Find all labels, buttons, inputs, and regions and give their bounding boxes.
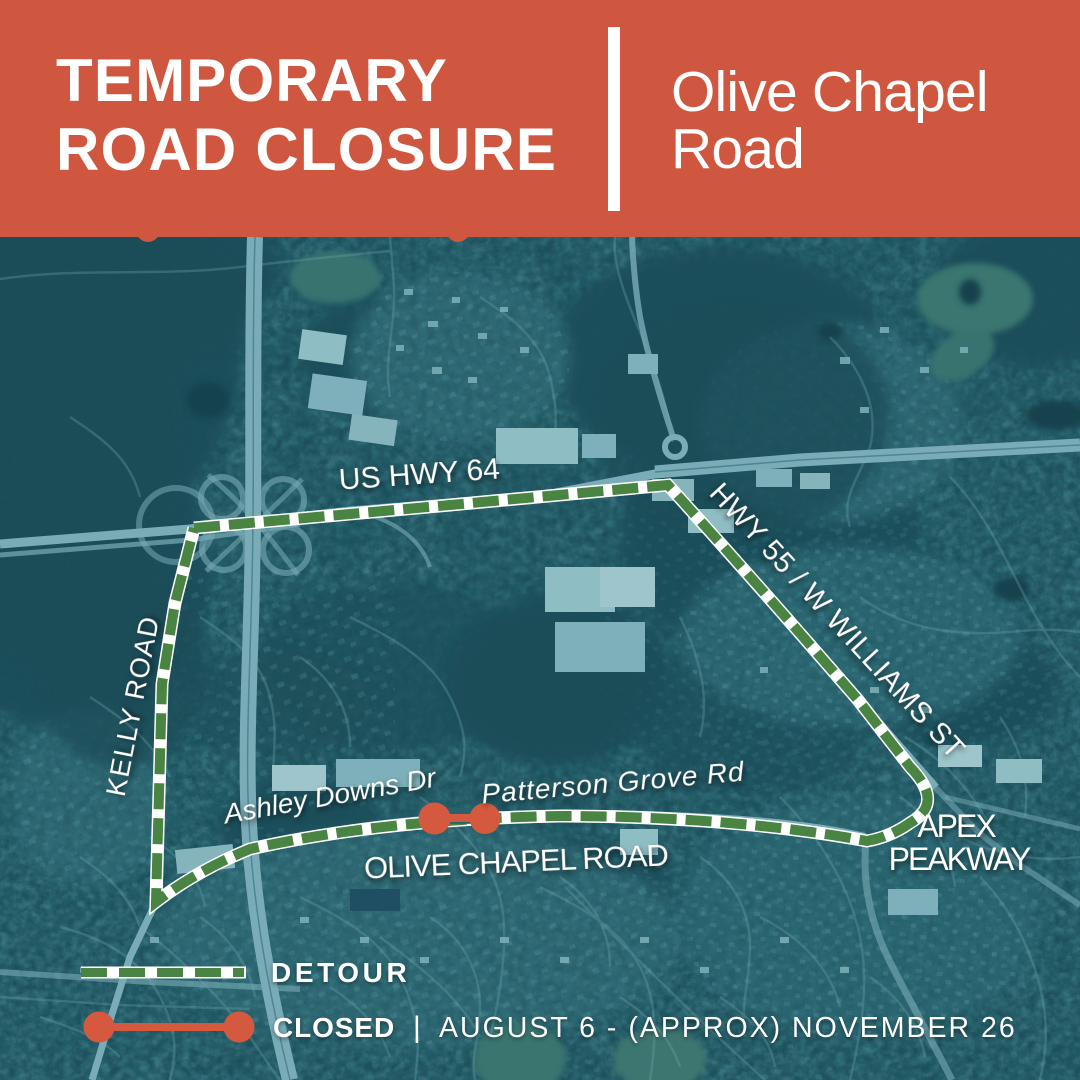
svg-text:CLOSED: CLOSED [273, 1012, 395, 1043]
svg-text:AUGUST 6 - (APPROX) NOVEMBER 2: AUGUST 6 - (APPROX) NOVEMBER 26 [439, 1012, 1017, 1044]
svg-text:APEX: APEX [917, 808, 996, 844]
svg-text:DETOUR: DETOUR [271, 957, 410, 988]
svg-text:|: | [413, 1011, 421, 1044]
svg-text:PEAKWAY: PEAKWAY [889, 841, 1031, 877]
